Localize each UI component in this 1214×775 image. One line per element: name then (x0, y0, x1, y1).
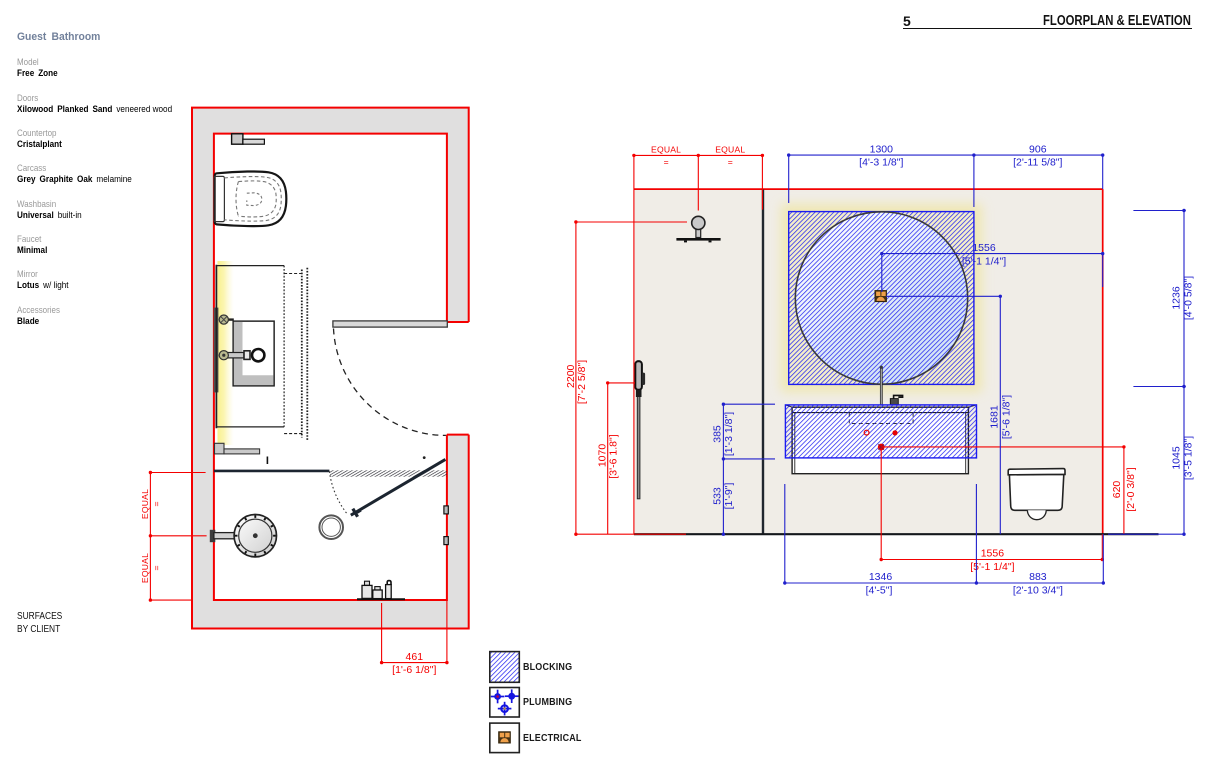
svg-text:461: 461 (406, 651, 424, 663)
svg-text:[4'-0 5/8"]: [4'-0 5/8"] (1183, 276, 1195, 320)
svg-text:1070: 1070 (596, 444, 608, 468)
svg-text:[5'-1 1/4"]: [5'-1 1/4"] (962, 255, 1006, 267)
svg-text:=: = (728, 157, 733, 167)
svg-text:[3'-6 1.8"]: [3'-6 1.8"] (608, 434, 620, 478)
svg-text:[2'-10 3/4"]: [2'-10 3/4"] (1013, 584, 1063, 596)
svg-text:385: 385 (712, 425, 724, 443)
svg-text:[2'-11 5/8"]: [2'-11 5/8"] (1013, 157, 1062, 169)
svg-text:EQUAL: EQUAL (715, 145, 745, 155)
svg-text:1556: 1556 (981, 548, 1005, 560)
svg-text:=: = (152, 501, 162, 506)
svg-text:=: = (152, 565, 162, 570)
svg-text:533: 533 (712, 487, 724, 505)
svg-text:EQUAL: EQUAL (140, 553, 150, 583)
svg-text:[5'-6 1/8"]: [5'-6 1/8"] (1001, 395, 1013, 439)
svg-text:EQUAL: EQUAL (140, 489, 150, 519)
svg-text:EQUAL: EQUAL (651, 145, 681, 155)
svg-text:[7'-2 5/8"]: [7'-2 5/8"] (576, 360, 588, 404)
svg-text:1236: 1236 (1171, 286, 1183, 310)
svg-text:1045: 1045 (1171, 446, 1183, 470)
svg-text:[1'-3 1/8"]: [1'-3 1/8"] (723, 412, 735, 456)
svg-text:[4'-5"]: [4'-5"] (866, 584, 893, 596)
svg-text:2200: 2200 (565, 364, 577, 388)
svg-text:1681: 1681 (989, 405, 1001, 429)
svg-text:[4'-3 1/8"]: [4'-3 1/8"] (859, 157, 903, 169)
svg-text:1556: 1556 (972, 242, 996, 254)
svg-text:[3'-5 1/8"]: [3'-5 1/8"] (1183, 436, 1195, 480)
svg-text:620: 620 (1111, 481, 1123, 499)
svg-text:[2'-0 3/8"]: [2'-0 3/8"] (1125, 467, 1137, 511)
svg-text:1300: 1300 (870, 143, 894, 155)
svg-text:[1'-9"]: [1'-9"] (723, 483, 735, 510)
svg-text:906: 906 (1029, 143, 1047, 155)
svg-text:883: 883 (1029, 571, 1047, 583)
svg-text:[1'-6 1/8"]: [1'-6 1/8"] (392, 664, 436, 676)
svg-text:=: = (664, 157, 669, 167)
svg-text:1346: 1346 (869, 571, 893, 583)
